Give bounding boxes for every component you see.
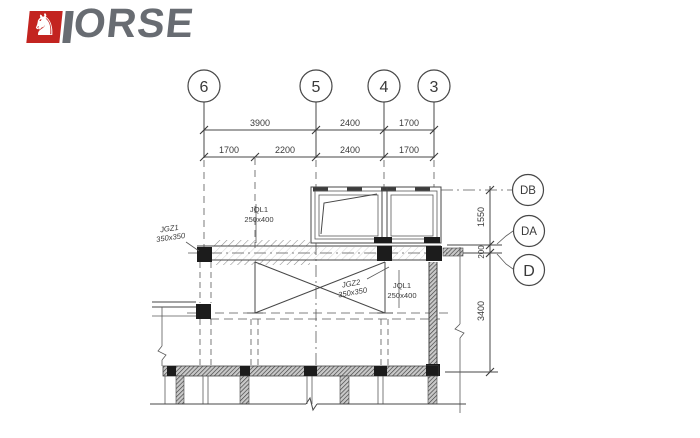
column-grid4 <box>377 246 392 261</box>
column-left-mid <box>196 304 211 319</box>
dimension-row-2: 1700 2200 2400 1700 <box>200 145 438 161</box>
dim-200: 200 <box>477 245 486 259</box>
dimension-row-1: 3900 2400 1700 <box>200 118 438 134</box>
foundation-posts <box>150 376 466 410</box>
grid-axes-right: DB DA D <box>441 175 545 286</box>
grid-label-4: 4 <box>380 79 389 96</box>
grid-label-6: 6 <box>200 79 209 96</box>
label-JGZ1: JGZ1 350x350 <box>154 222 186 244</box>
right-wall-section <box>429 262 437 364</box>
dim-1550: 1550 <box>476 207 486 227</box>
svg-text:JQL1: JQL1 <box>250 205 268 214</box>
svg-text:250x400: 250x400 <box>244 215 273 224</box>
break-symbol-right <box>455 324 464 338</box>
column-grid3 <box>426 246 442 261</box>
grid-label-DB: DB <box>520 185 536 197</box>
column-grid6 <box>197 247 212 262</box>
dim-3400: 3400 <box>476 301 486 321</box>
product-drawing-image: ♞ ORSE 6 <box>0 0 700 438</box>
break-symbol-left <box>158 346 166 360</box>
dim-2400-top: 2400 <box>340 118 360 128</box>
dim-1700-a: 1700 <box>219 145 239 155</box>
left-wall <box>152 262 211 366</box>
structural-plan-drawing: 6 5 4 3 3900 2400 1700 1700 <box>0 0 700 438</box>
dim-3900: 3900 <box>250 118 270 128</box>
grid-label-DA: DA <box>521 226 537 238</box>
grid-label-3: 3 <box>430 79 439 96</box>
break-symbol-bottom <box>306 398 317 410</box>
dim-2200: 2200 <box>275 145 295 155</box>
window-bay-detail <box>311 187 441 243</box>
svg-text:JQL1: JQL1 <box>393 281 411 290</box>
grid-label-D: D <box>523 263 535 280</box>
dim-1700-top: 1700 <box>399 118 419 128</box>
bottom-ring-beam <box>163 366 438 376</box>
svg-text:250x400: 250x400 <box>387 291 416 300</box>
label-JQL1-top: JQL1 250x400 <box>244 204 273 243</box>
dim-1700-b: 1700 <box>399 145 419 155</box>
main-beam <box>188 240 448 265</box>
window-opening-line <box>321 194 377 234</box>
dim-2400-b: 2400 <box>340 145 360 155</box>
label-JQL1-right: JQL1 250x400 <box>387 270 416 308</box>
grid-label-5: 5 <box>312 79 321 96</box>
label-JGZ2: JGZ2 350x350 <box>336 267 389 299</box>
dimension-column-right: 1550 200 3400 <box>445 186 498 413</box>
